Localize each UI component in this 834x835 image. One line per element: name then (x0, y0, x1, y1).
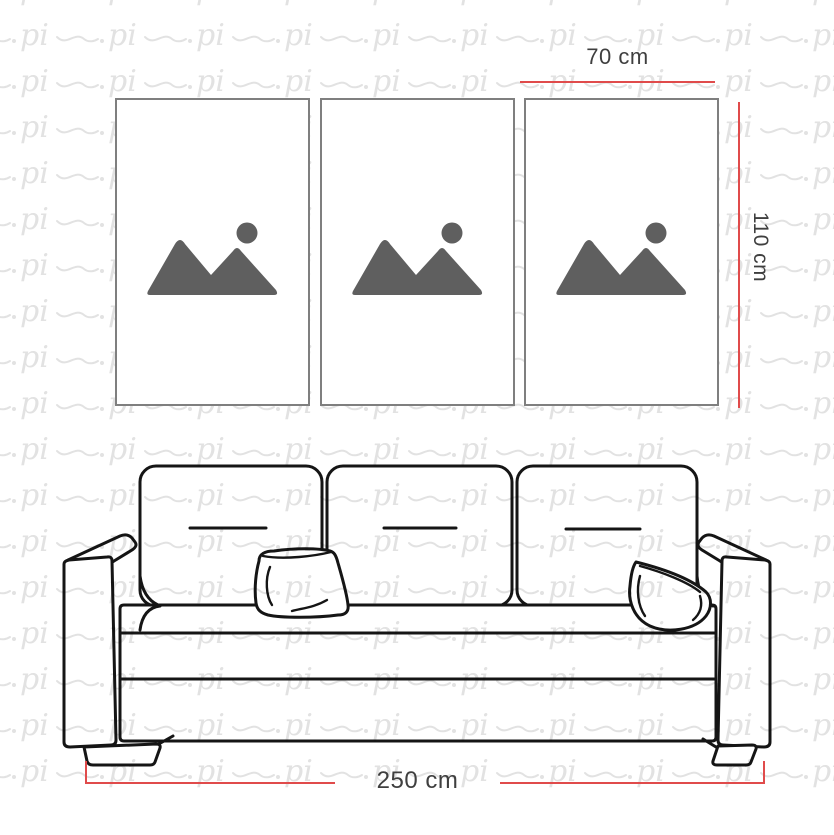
mountains-icon (556, 240, 686, 295)
panel-width-label: 70 cm (520, 44, 715, 70)
sofa-width-tick-right (763, 761, 765, 784)
image-placeholder-icon (556, 221, 688, 299)
art-panel-3 (524, 98, 719, 406)
sofa-pillow-middle (255, 549, 348, 618)
art-panel-2 (320, 98, 515, 406)
sofa-back-cushions (140, 466, 697, 606)
sun-icon (236, 223, 257, 244)
panel-height-line (738, 102, 740, 408)
art-panel-1 (115, 98, 310, 406)
sofa-width-label: 250 cm (335, 767, 500, 795)
sofa-width-line-left (86, 782, 335, 784)
sun-icon (441, 223, 462, 244)
mountains-icon (352, 240, 482, 295)
size-guide-canvas: pi 70 cm 110 cm 250 cm (0, 0, 834, 835)
sofa-width-tick-left (85, 761, 87, 784)
panel-height-label: 110 cm (746, 206, 772, 288)
sun-icon (645, 223, 666, 244)
panel-width-line (520, 81, 715, 83)
mountains-icon (147, 240, 277, 295)
image-placeholder-icon (352, 221, 484, 299)
sofa-width-line-right (500, 782, 764, 784)
image-placeholder-icon (147, 221, 279, 299)
